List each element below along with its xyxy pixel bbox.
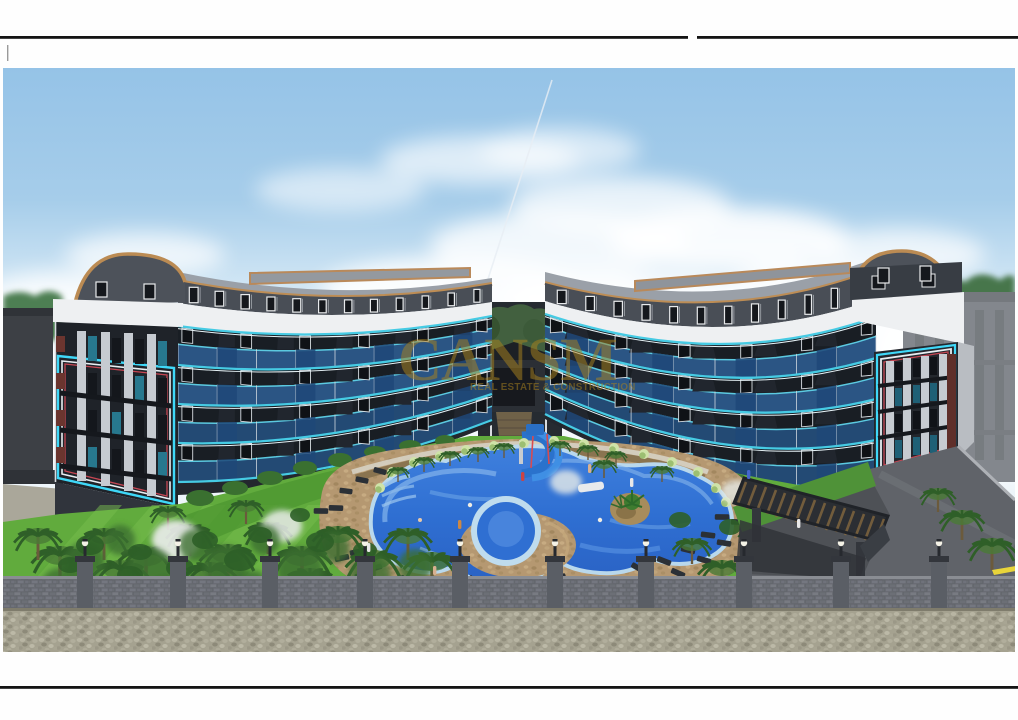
svg-text:REAL ESTATE & CONSTRUCTION: REAL ESTATE & CONSTRUCTION <box>470 382 636 393</box>
